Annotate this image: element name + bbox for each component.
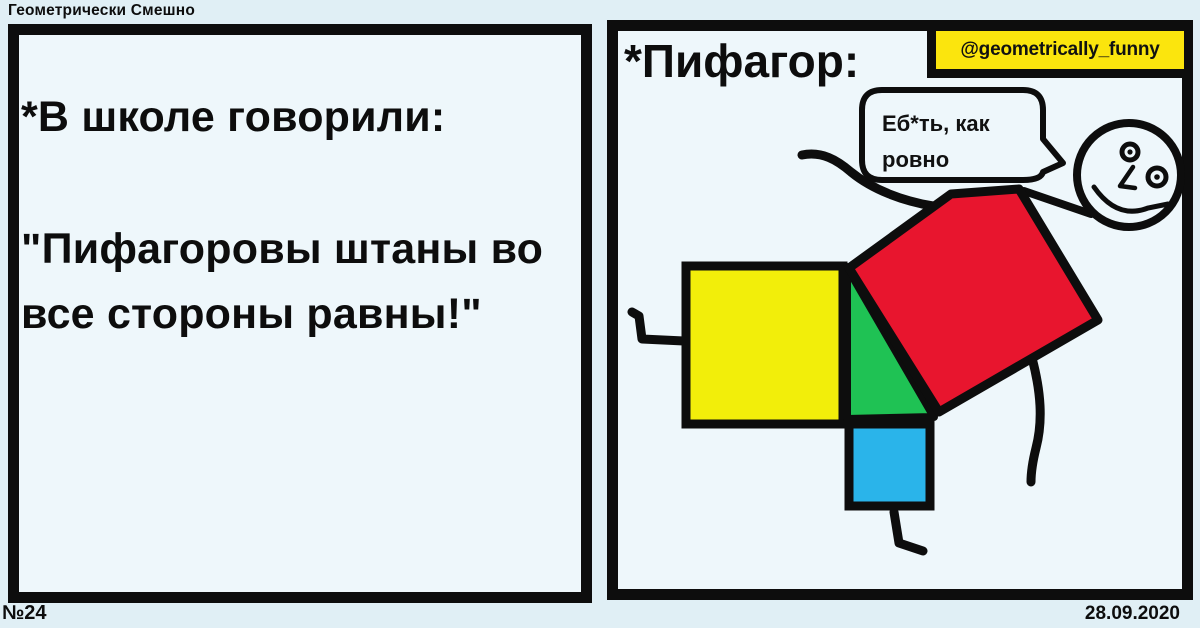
issue-number: №24 [2,602,47,625]
date-stamp: 28.09.2020 [1085,603,1180,625]
account-watermark-badge: @geometrically_funny [927,22,1193,78]
comic-series-title: Геометрически Смешно [8,2,195,20]
panel1-intro-text: *В школе говорили: [21,93,445,142]
comic-panel-right: *Пифагор: @geometrically_funny [607,20,1193,600]
panel2-title-text: *Пифагор: [624,34,859,88]
panel1-quote-text: "Пифагоровы штаны во все стороны равны!" [21,217,581,347]
comic-panel-left: *В школе говорили: "Пифагоровы штаны во … [8,24,592,603]
account-watermark-text: @geometrically_funny [960,39,1159,61]
